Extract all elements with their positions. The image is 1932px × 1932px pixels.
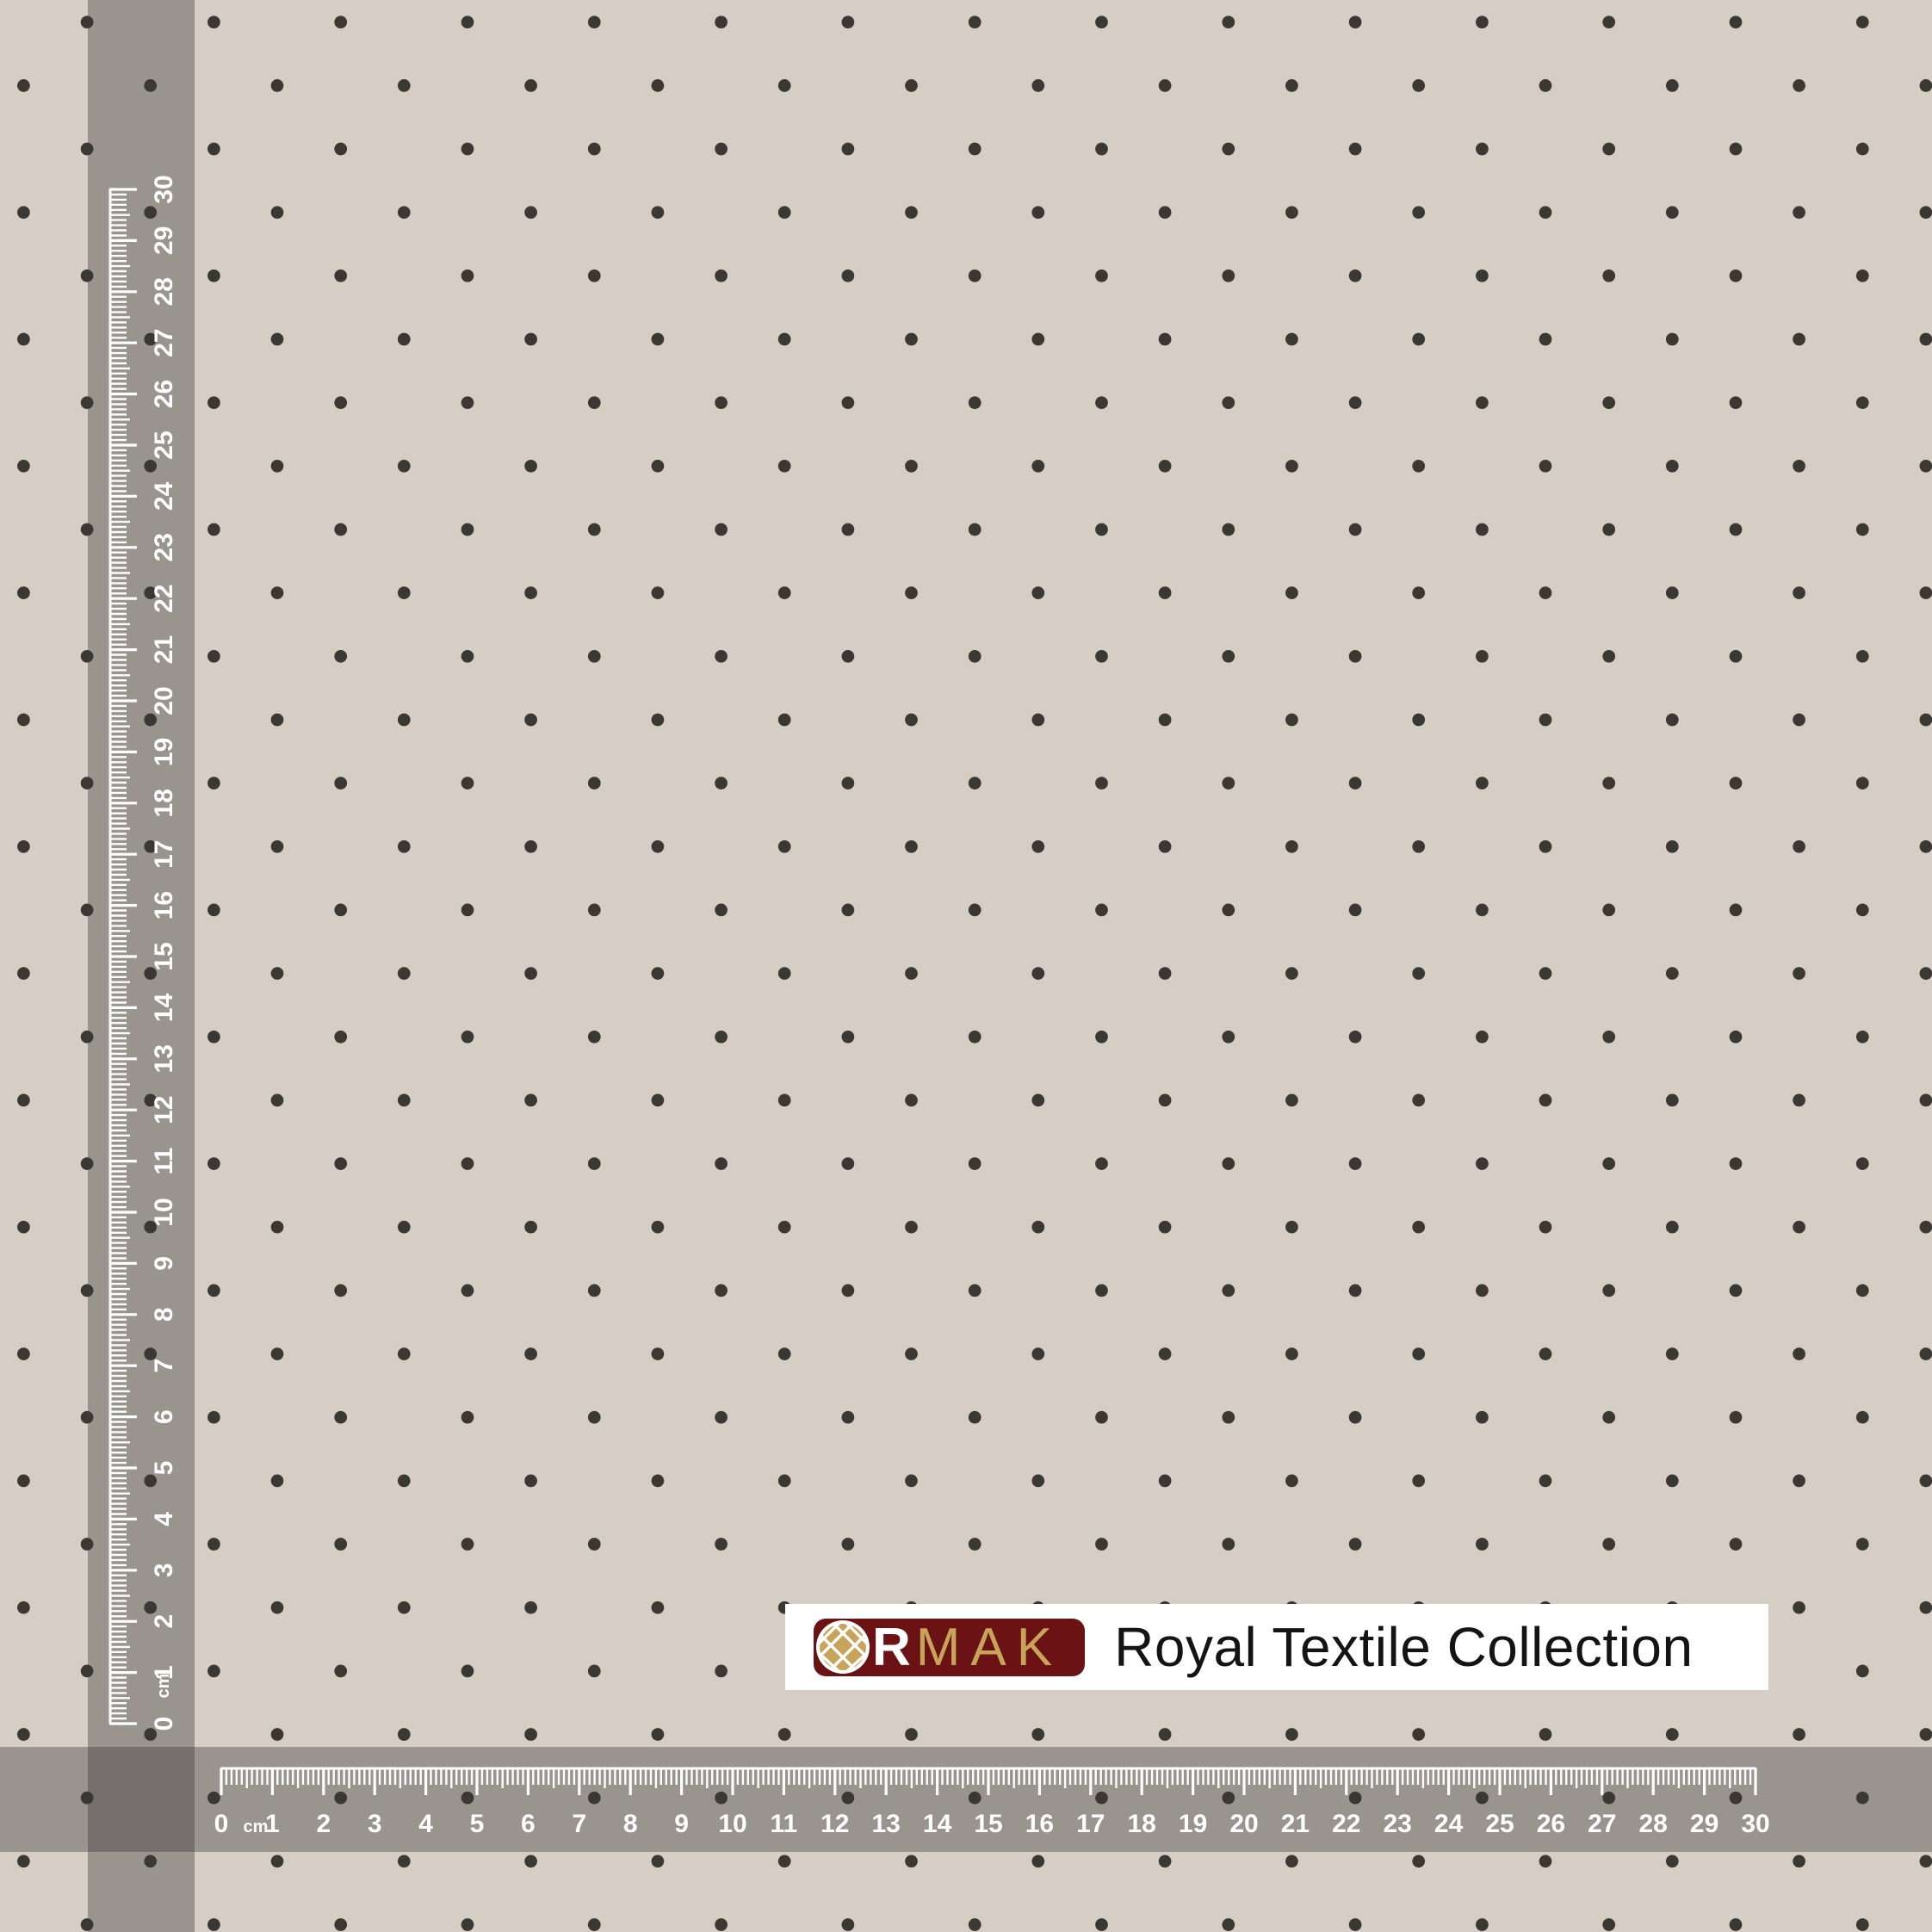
polka-dot [1856,1411,1869,1424]
polka-dot [524,586,537,599]
polka-dot [778,460,791,473]
ruler-label: 29 [1690,1810,1718,1838]
polka-dot [715,777,728,790]
polka-dot [1159,333,1172,346]
polka-dot [778,1475,791,1488]
polka-dot [1159,1475,1172,1488]
polka-dot [17,586,30,599]
polka-dot [778,586,791,599]
polka-dot [207,269,220,282]
ruler-unit-label: cm [154,1674,173,1699]
polka-dot [1920,1347,1932,1360]
polka-dot [524,1855,537,1867]
polka-dot [524,714,537,727]
polka-dot [461,143,474,156]
polka-dot [715,1031,728,1043]
polka-dot [969,1157,981,1170]
polka-dot [1539,967,1552,980]
polka-dot [334,777,347,790]
polka-dot [461,15,474,28]
polka-dot [1031,1221,1044,1234]
polka-dot [271,1221,284,1234]
polka-dot [17,1601,30,1614]
polka-dot [969,396,981,409]
polka-dot [652,586,665,599]
ruler-label: 21 [1281,1810,1310,1838]
polka-dot [778,1728,791,1741]
polka-dot [1856,777,1869,790]
polka-dot [1602,1285,1615,1297]
polka-dot [1666,1347,1679,1360]
polka-dot [1031,1728,1044,1741]
polka-dot [1159,967,1172,980]
polka-dot [1159,79,1172,92]
polka-dot [1602,523,1615,536]
polka-dot [461,1031,474,1043]
polka-dot [1222,1285,1235,1297]
polka-dot [1222,15,1235,28]
ruler-label: 16 [1025,1810,1054,1838]
polka-dot [969,1918,981,1931]
polka-dot [1349,1157,1362,1170]
ruler-label: 9 [674,1810,689,1838]
polka-dot [1666,460,1679,473]
ruler-label: 3 [368,1810,382,1838]
polka-dot [652,206,665,219]
brand-tagline: Royal Textile Collection [1114,1604,1693,1690]
polka-dot [715,1665,728,1678]
polka-dot [1539,840,1552,853]
polka-dot [1031,1094,1044,1107]
ruler-label: 12 [150,1096,178,1124]
polka-dot [1349,1411,1362,1424]
polka-dot [1920,967,1932,980]
polka-dot [1159,206,1172,219]
polka-dot [1222,1157,1235,1170]
polka-dot [334,1285,347,1297]
polka-dot [334,143,347,156]
polka-dot [1285,79,1298,92]
polka-dot [1095,1918,1108,1931]
polka-dot [1095,1157,1108,1170]
polka-dot [588,396,601,409]
polka-dot [1730,904,1743,917]
ruler-label: 23 [150,533,178,561]
polka-dot [1095,1031,1108,1043]
polka-dot [271,460,284,473]
ruler-label: 24 [150,481,178,511]
polka-dot [1412,1347,1425,1360]
polka-dot [842,1031,855,1043]
polka-dot [905,840,918,853]
polka-dot [905,206,918,219]
polka-dot [588,650,601,663]
polka-dot [1095,143,1108,156]
polka-dot [1666,1855,1679,1867]
ruler-label: 0 [214,1810,229,1838]
ruler-label: 0 [150,1717,178,1731]
polka-dot [271,79,284,92]
polka-dot [17,840,30,853]
polka-dot [1793,333,1805,346]
polka-dot [1666,333,1679,346]
polka-dot [969,269,981,282]
polka-dot [398,1221,411,1234]
ruler-label: 6 [150,1409,178,1424]
polka-dot [1666,714,1679,727]
polka-dot [1159,1728,1172,1741]
polka-dot [1412,1475,1425,1488]
polka-dot [1856,396,1869,409]
polka-dot [461,396,474,409]
polka-dot [1285,206,1298,219]
polka-dot [398,840,411,853]
polka-dot [207,396,220,409]
polka-dot [1730,1538,1743,1551]
polka-dot [588,1285,601,1297]
polka-dot [1730,396,1743,409]
polka-dot [1349,269,1362,282]
polka-dot [524,1221,537,1234]
polka-dot [588,523,601,536]
ruler-label: 7 [572,1810,586,1838]
polka-dot [842,269,855,282]
polka-dot [271,1094,284,1107]
polka-dot [207,777,220,790]
polka-dot [905,460,918,473]
polka-dot [905,1728,918,1741]
polka-dot [905,586,918,599]
polka-dot [1539,1221,1552,1234]
polka-dot [334,1411,347,1424]
polka-dot [1159,1221,1172,1234]
polka-dot [1666,1475,1679,1488]
polka-dot [652,1855,665,1867]
polka-dot [1730,1285,1743,1297]
polka-dot [778,1094,791,1107]
polka-dot [715,523,728,536]
polka-dot [905,1855,918,1867]
polka-dot [1349,777,1362,790]
ruler-label: 17 [1076,1810,1105,1838]
polka-dot [1159,840,1172,853]
polka-dot [652,1601,665,1614]
polka-dot [1602,269,1615,282]
polka-dot [715,1285,728,1297]
polka-dot [1793,967,1805,980]
polka-dot [1031,79,1044,92]
polka-dot [207,650,220,663]
polka-dot [969,15,981,28]
polka-dot [1856,1157,1869,1170]
polka-dot [1285,1855,1298,1867]
polka-dot [1222,1918,1235,1931]
polka-dot [1730,650,1743,663]
polka-dot [17,79,30,92]
polka-dot [652,1475,665,1488]
polka-dot [1349,904,1362,917]
polka-dot [461,1157,474,1170]
polka-dot [1412,460,1425,473]
polka-dot [461,523,474,536]
polka-dot [652,460,665,473]
polka-dot [1856,1031,1869,1043]
polka-dot [1920,1855,1932,1867]
polka-dot [398,967,411,980]
polka-dot [1285,840,1298,853]
polka-dot [271,586,284,599]
polka-dot [1285,1347,1298,1360]
polka-dot [588,1538,601,1551]
polka-dot [1920,1475,1932,1488]
ruler-label: 13 [872,1810,901,1838]
polka-dot [1285,967,1298,980]
polka-dot [1539,1855,1552,1867]
polka-dot [1730,1918,1743,1931]
polka-dot [715,143,728,156]
polka-dot [1095,396,1108,409]
polka-dot [1412,1728,1425,1741]
polka-dot [715,15,728,28]
polka-dot [969,1285,981,1297]
polka-dot [1285,1221,1298,1234]
ruler-label: 4 [418,1810,433,1838]
polka-dot [1539,1475,1552,1488]
polka-dot [842,1157,855,1170]
ruler-label: 3 [150,1563,178,1577]
polka-dot [1666,1221,1679,1234]
polka-dot [334,904,347,917]
polka-dot [207,1031,220,1043]
polka-dot [1159,1347,1172,1360]
polka-dot [1159,714,1172,727]
polka-dot [524,79,537,92]
polka-dot [1095,15,1108,28]
ruler-label: 5 [470,1810,485,1838]
polka-dot [1476,1411,1489,1424]
polka-dot [271,840,284,853]
polka-dot [1793,1094,1805,1107]
polka-dot [1412,1221,1425,1234]
polka-dot [905,333,918,346]
polka-dot [17,967,30,980]
polka-dot [1031,586,1044,599]
ruler-label: 11 [150,1148,178,1175]
polka-dot [1539,1347,1552,1360]
polka-dot [1349,396,1362,409]
polka-dot [1285,333,1298,346]
polka-dot [1856,1285,1869,1297]
polka-dot [652,79,665,92]
polka-dot [905,714,918,727]
ruler-label: 8 [623,1810,638,1838]
polka-dot [1793,1855,1805,1867]
polka-dot [715,650,728,663]
polka-dot [1285,460,1298,473]
ruler-label: 13 [150,1044,178,1073]
polka-dot [969,523,981,536]
ruler-label: 28 [150,277,178,306]
ruler-label: 4 [150,1512,178,1526]
ruler-label: 29 [150,226,178,255]
polka-dot [1730,15,1743,28]
polka-dot [1476,1031,1489,1043]
polka-dot [1793,206,1805,219]
polka-dot [842,1538,855,1551]
polka-dot [842,777,855,790]
polka-dot [652,1347,665,1360]
ruler-label: 18 [1128,1810,1156,1838]
polka-dot [1031,1347,1044,1360]
polka-dot [1159,460,1172,473]
ruler-label: 14 [150,993,178,1022]
polka-dot [905,1221,918,1234]
polka-dot [1349,1918,1362,1931]
polka-dot [715,904,728,917]
polka-dot [398,1728,411,1741]
polka-dot [1476,1157,1489,1170]
polka-dot [398,1347,411,1360]
polka-dot [271,1728,284,1741]
polka-dot [398,1601,411,1614]
ruler-label: 20 [1229,1810,1258,1838]
polka-dot [1031,967,1044,980]
polka-dot [398,460,411,473]
polka-dot [207,1918,220,1931]
polka-dot [207,1665,220,1678]
polka-dot [1476,650,1489,663]
ruler-label: 5 [150,1461,178,1476]
polka-dot [1666,1728,1679,1741]
ruler-label: 2 [150,1614,178,1629]
polka-dot [1222,777,1235,790]
polka-dot [398,714,411,727]
polka-dot [1602,1031,1615,1043]
ruler-label: 9 [150,1256,178,1271]
ruler-label: 8 [150,1307,178,1322]
polka-dot [1539,333,1552,346]
polka-dot [1031,840,1044,853]
polka-dot [1666,586,1679,599]
polka-dot [778,333,791,346]
polka-dot [271,1855,284,1867]
ruler-label: 25 [150,430,178,459]
polka-dot [1856,1538,1869,1551]
polka-dot [334,1538,347,1551]
polka-dot [334,15,347,28]
polka-dot [334,1918,347,1931]
polka-dot [1539,206,1552,219]
polka-dot [334,396,347,409]
polka-dot [1666,840,1679,853]
polka-dot [969,777,981,790]
polka-dot [1856,650,1869,663]
polka-dot [524,1347,537,1360]
ruler-label: 19 [1179,1810,1207,1838]
polka-dot [1222,143,1235,156]
polka-dot [1476,269,1489,282]
polka-dot [588,777,601,790]
polka-dot [842,1411,855,1424]
polka-dot [588,269,601,282]
polka-dot [1793,79,1805,92]
ruler-label: 2 [316,1810,331,1838]
woven-sphere-icon [815,1619,870,1675]
polka-dot [207,523,220,536]
polka-dot [334,269,347,282]
polka-dot [1539,586,1552,599]
polka-dot [207,1538,220,1551]
polka-dot [778,206,791,219]
polka-dot [1730,777,1743,790]
polka-dot [715,1411,728,1424]
polka-dot [1031,714,1044,727]
polka-dot [1793,840,1805,853]
polka-dot [1920,333,1932,346]
polka-dot [1666,79,1679,92]
polka-dot [17,1728,30,1741]
polka-dot [1222,523,1235,536]
vertical-ruler-band [88,0,195,1932]
polka-dot [778,1347,791,1360]
polka-dot [652,967,665,980]
polka-dot [334,523,347,536]
polka-dot [17,333,30,346]
polka-dot [969,650,981,663]
ruler-label: 10 [718,1810,746,1838]
polka-dot [1095,1411,1108,1424]
polka-dot [461,904,474,917]
polka-dot [1856,143,1869,156]
polka-dot [398,79,411,92]
polka-dot [1222,1538,1235,1551]
ruler-label: 6 [521,1810,536,1838]
polka-dot [1539,714,1552,727]
polka-dot [271,1475,284,1488]
polka-dot [905,79,918,92]
polka-dot [1602,777,1615,790]
polka-dot [271,206,284,219]
polka-dot [1730,1157,1743,1170]
ruler-label: 30 [150,175,178,203]
polka-dot [1159,1094,1172,1107]
polka-dot [17,206,30,219]
polka-dot [1222,904,1235,917]
ruler-label: 15 [150,942,178,970]
polka-dot [398,1475,411,1488]
polka-dot [1222,1411,1235,1424]
polka-dot [1476,904,1489,917]
polka-dot [1602,396,1615,409]
polka-dot [1031,460,1044,473]
polka-dot [1095,777,1108,790]
polka-dot [1920,714,1932,727]
polka-dot [271,1601,284,1614]
polka-dot [1539,460,1552,473]
polka-dot [1730,1031,1743,1043]
polka-dot [842,15,855,28]
polka-dot [969,1538,981,1551]
ruler-label: 21 [150,635,178,664]
polka-dot [905,1094,918,1107]
polka-dot [271,967,284,980]
polka-dot [524,967,537,980]
polka-dot [207,15,220,28]
ruler-label: 15 [974,1810,1002,1838]
polka-dot [1476,1285,1489,1297]
polka-dot [207,904,220,917]
polka-dot [1349,15,1362,28]
